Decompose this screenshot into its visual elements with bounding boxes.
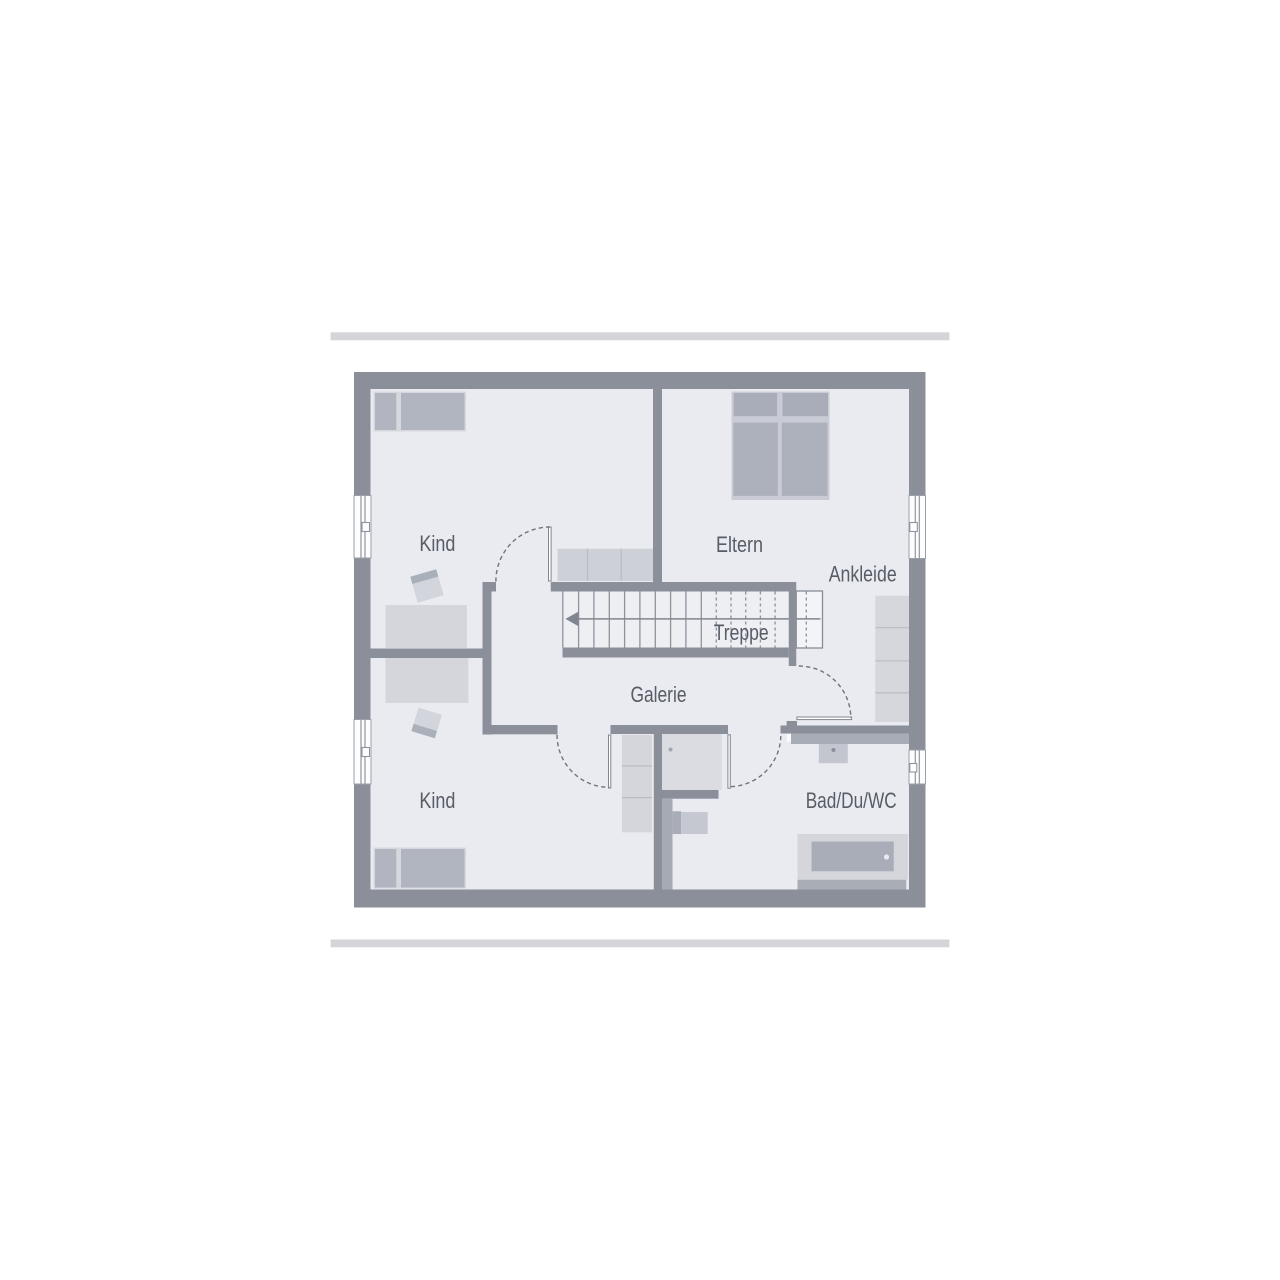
svg-text:Bad/Du/WC: Bad/Du/WC (806, 788, 897, 813)
svg-text:Treppe: Treppe (714, 620, 769, 645)
svg-text:Kind: Kind (419, 788, 455, 813)
svg-text:Kind: Kind (419, 531, 455, 556)
svg-text:Eltern: Eltern (716, 532, 763, 557)
svg-text:Ankleide: Ankleide (829, 562, 897, 587)
svg-text:Galerie: Galerie (631, 682, 687, 707)
